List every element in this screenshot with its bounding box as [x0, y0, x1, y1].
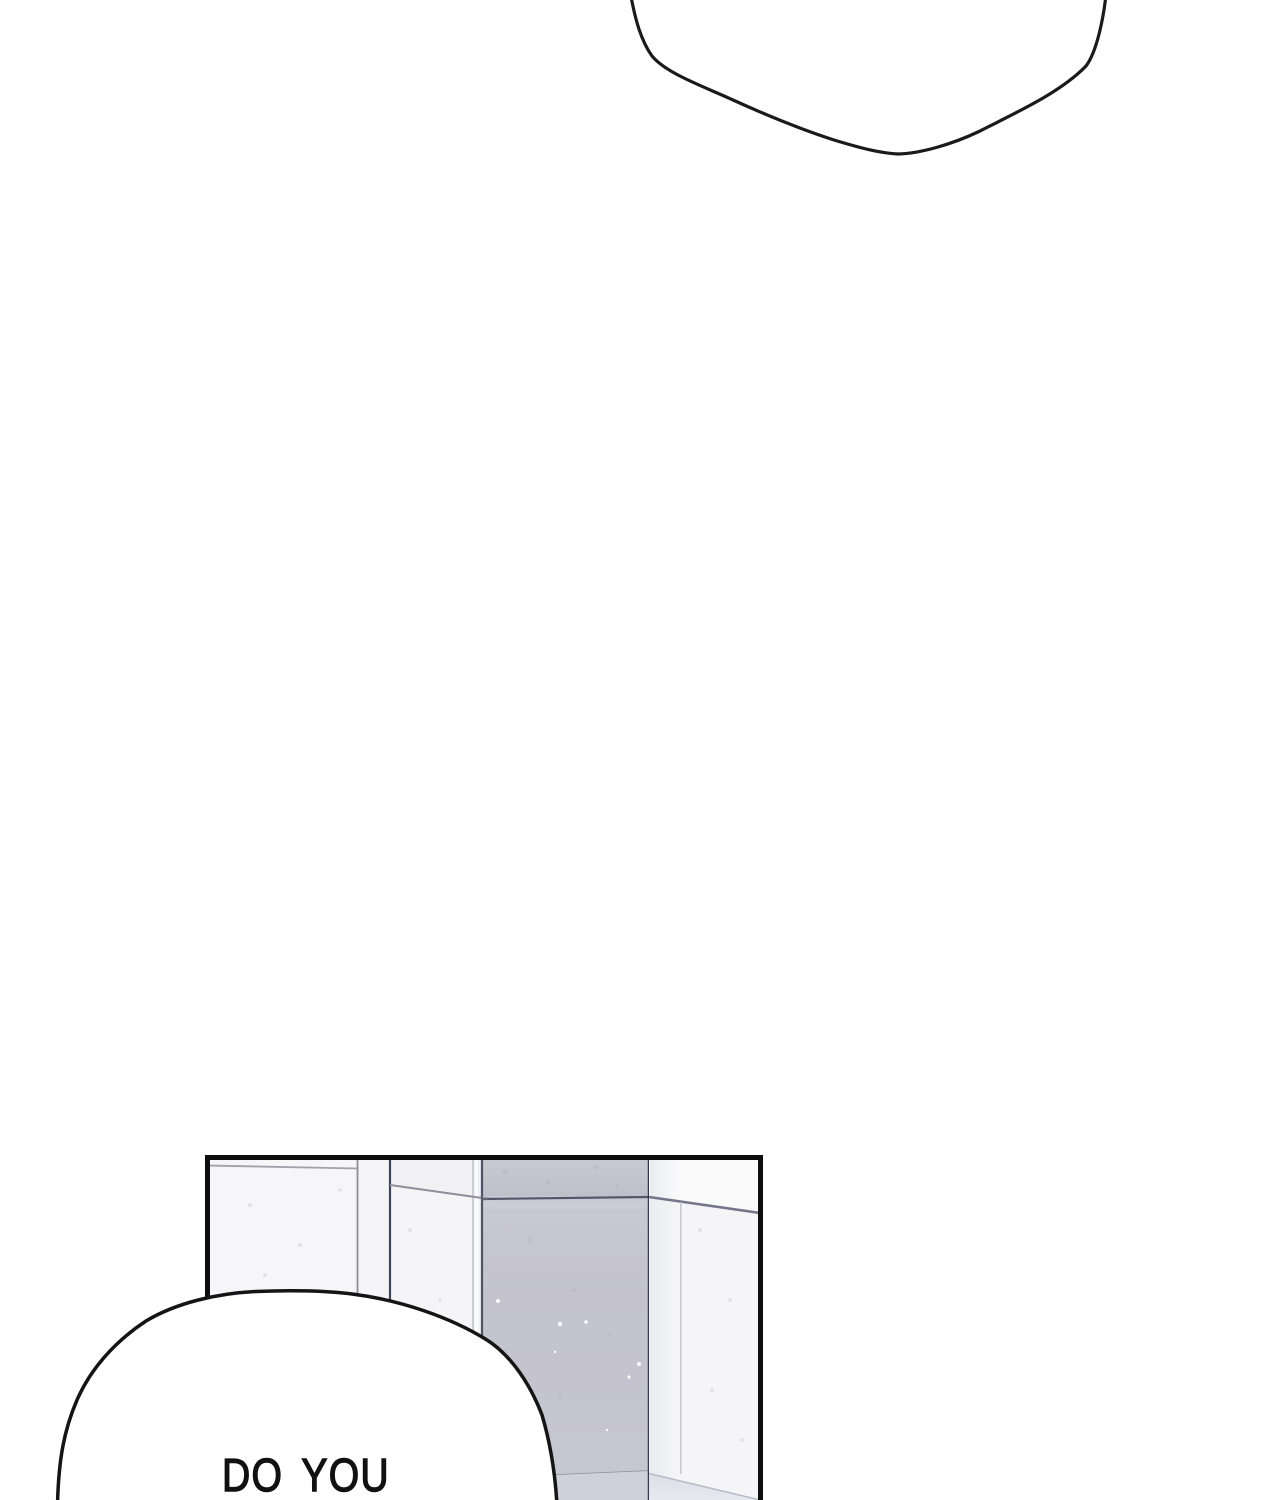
svg-text:DO YOU: DO YOU: [222, 1450, 390, 1500]
